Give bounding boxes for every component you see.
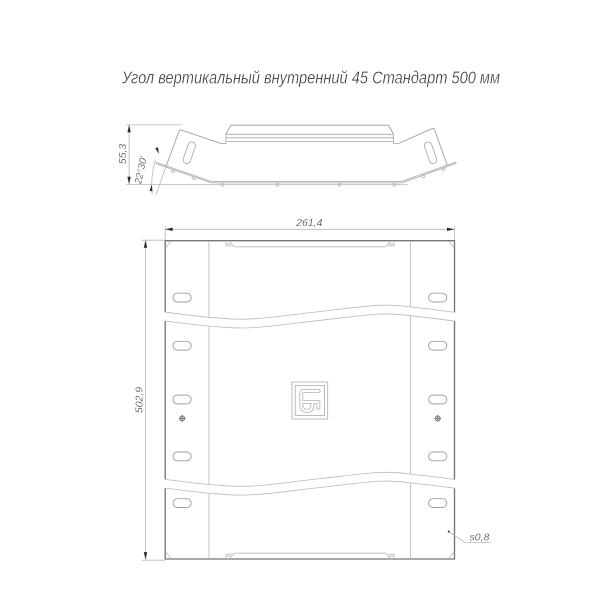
svg-text:55,3: 55,3 xyxy=(117,144,129,165)
svg-text:261,4: 261,4 xyxy=(295,217,322,229)
svg-text:s0,8: s0,8 xyxy=(470,532,490,544)
svg-text:22°30′: 22°30′ xyxy=(133,154,150,186)
svg-text:Угол вертикальный внутренний 4: Угол вертикальный внутренний 45 Стандарт… xyxy=(121,67,500,87)
svg-text:502,9: 502,9 xyxy=(133,387,145,413)
